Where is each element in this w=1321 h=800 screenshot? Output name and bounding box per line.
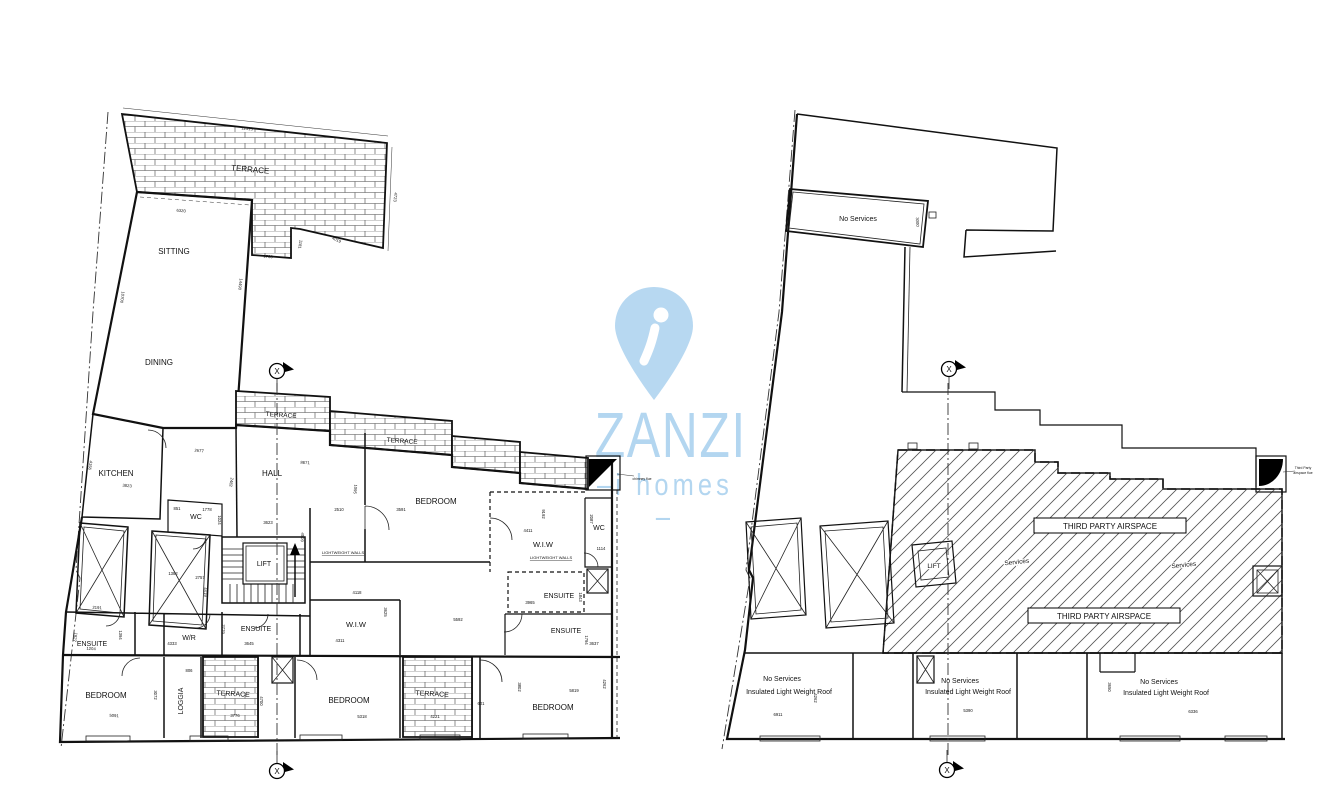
terrace-top xyxy=(122,114,387,258)
dimension-label: 10700 xyxy=(119,291,126,304)
dimension-label: 806 xyxy=(186,668,194,673)
dimension-label: 4262 xyxy=(813,693,818,703)
dimension-label: 4509 xyxy=(300,532,306,542)
dimension-label: 1394 xyxy=(118,630,123,640)
room-label: ENSUITE xyxy=(551,628,582,635)
dimension-label: 4262 xyxy=(602,679,607,689)
room-label: DINING xyxy=(145,358,173,367)
dimension-label: 1794 xyxy=(584,635,589,645)
room-label: No Services xyxy=(763,676,801,683)
section-marker-letter: X xyxy=(274,367,280,376)
dimension-label: 4118 xyxy=(352,590,362,595)
tiny-note: Third Party xyxy=(1295,466,1312,470)
dimension-label: 3625 xyxy=(383,607,388,617)
room-label: BEDROOM xyxy=(85,691,127,700)
dimension-label: 1204 xyxy=(86,646,96,652)
dimension-label: 3000 xyxy=(915,217,920,227)
dimension-label: 9192 xyxy=(541,509,546,519)
dimension-label: 4221 xyxy=(430,714,440,719)
room3-step xyxy=(1100,653,1135,672)
dimension-label: 1114 xyxy=(597,546,606,551)
tiny-note: LIGHTWEIGHT WALLS xyxy=(530,555,573,560)
tiny-note: chimney flue xyxy=(632,477,651,481)
dimension-label: 3623 xyxy=(263,520,273,525)
dimension-label: 4419 xyxy=(203,587,208,597)
room-label: BEDROOM xyxy=(532,703,574,712)
staircase xyxy=(222,537,305,603)
room-label: Insulated Light Weight Roof xyxy=(746,689,832,696)
dimension-label: 5390 xyxy=(963,708,973,713)
section-marker: X xyxy=(270,362,295,391)
wall-below-room xyxy=(902,247,905,392)
service-shaft xyxy=(76,523,128,617)
upper-outline xyxy=(797,114,1057,257)
dimension-label: 6320 xyxy=(176,208,186,214)
dimension-label: 3965 xyxy=(525,600,535,605)
drawing-sheet: ZANZI –i homes – xyxy=(0,0,1321,800)
dimension-label: 5819 xyxy=(569,688,579,693)
dimension-label: 2087 xyxy=(589,514,594,524)
dimension-label: 6911 xyxy=(773,712,783,717)
dimension-label: 1827 xyxy=(72,632,79,643)
chimney-flue-flag xyxy=(586,456,634,490)
roof-plan-right: THIRD PARTY AIRSPACE THIRD PARTY AIRSPAC… xyxy=(722,110,1313,757)
dimension-label: 1095 xyxy=(353,484,359,494)
room-label: Insulated Light Weight Roof xyxy=(1123,690,1209,697)
dimension-label: 5318 xyxy=(357,714,367,719)
room-label: HALL xyxy=(262,469,283,478)
dimension-label: 3072 xyxy=(153,690,158,700)
section-marker: X xyxy=(270,751,295,779)
hall-wall xyxy=(236,428,237,537)
roof-tick xyxy=(908,443,917,449)
dimension-label: 4333 xyxy=(167,641,177,646)
sitting-dining-room xyxy=(93,192,252,428)
room-label: LIFT xyxy=(927,563,940,570)
room-label: KITCHEN xyxy=(98,469,133,478)
dimension-label: 1382 xyxy=(168,571,178,576)
bottom-row-top-wall xyxy=(63,655,620,657)
room-label: No Services xyxy=(839,216,877,223)
tiny-note: airspace flue xyxy=(1293,471,1312,475)
dimension-label: 2757 xyxy=(195,575,205,580)
airspace-box-label: THIRD PARTY AIRSPACE xyxy=(1063,522,1157,531)
dimension-label: 4723 xyxy=(393,192,399,202)
dimension-label: 1843 xyxy=(578,592,583,602)
dimension-label: 8671 xyxy=(300,460,310,466)
room-label: No Services xyxy=(941,678,979,685)
dimension-label: 5592 xyxy=(453,617,463,622)
dimension-label: 3776 xyxy=(230,713,240,718)
dimension-label: 2191 xyxy=(92,605,102,611)
dimension-label: 1730 xyxy=(263,254,273,260)
service-shaft xyxy=(746,518,806,619)
third-party-airspace-box: THIRD PARTY AIRSPACE xyxy=(1034,518,1186,533)
wc-right-walls xyxy=(585,498,612,567)
room-label: WC xyxy=(593,525,605,532)
dimension-label: 4411 xyxy=(523,528,533,533)
dimension-label: 601 xyxy=(478,701,486,706)
site-boundary-line xyxy=(61,112,108,748)
dimension-label: 5091 xyxy=(109,713,119,719)
lightweight-walls xyxy=(490,492,585,572)
room-label: BEDROOM xyxy=(328,696,370,705)
room-label: WC xyxy=(190,514,202,521)
room-label: W/R xyxy=(182,635,196,642)
section-marker: X xyxy=(942,360,967,389)
dimension-label: 3802 xyxy=(517,682,522,692)
dimension-label: 2510 xyxy=(334,507,344,512)
dimension-label: 4700 xyxy=(259,696,264,706)
room-label: No Services xyxy=(1140,679,1178,686)
dimension-label: 12515 xyxy=(241,126,254,132)
room-label: W.I.W xyxy=(533,540,554,549)
room-label: Insulated Light Weight Roof xyxy=(925,689,1011,696)
service-shaft xyxy=(587,569,608,593)
dimension-label: 3591 xyxy=(396,507,406,512)
dimension-label: 851 xyxy=(174,506,182,511)
section-marker-letter: X xyxy=(946,365,952,374)
dimension-label: 1778 xyxy=(202,507,212,512)
service-shaft xyxy=(917,656,934,683)
dimension-label: 2779 xyxy=(221,624,226,634)
dimension-label: 1181 xyxy=(297,239,304,249)
room-label: ENSUITE xyxy=(544,593,575,600)
floor-plan-left: TERRACESITTINGDININGKITCHENWCHALLLIFTTER… xyxy=(60,108,652,757)
dimension-label: 3650 xyxy=(1107,682,1112,692)
room-label: LOGGIA xyxy=(178,687,185,714)
section-marker-letter: X xyxy=(274,767,280,776)
dimension-label: 3823 xyxy=(122,483,132,489)
third-party-flue-flag xyxy=(1256,456,1295,492)
dimension-label: 1024 xyxy=(217,515,222,525)
floor-plans-canvas: TERRACESITTINGDININGKITCHENWCHALLLIFTTER… xyxy=(0,0,1321,800)
room-label: BEDROOM xyxy=(415,497,457,506)
wall-below-room-inner xyxy=(907,247,910,392)
tiny-note: LIGHTWEIGHT WALLS xyxy=(322,550,365,555)
dimension-label: 14490 xyxy=(237,278,243,291)
kitchen-room xyxy=(82,414,163,519)
right-plan-notes: Third Partyairspace flue xyxy=(1293,466,1312,475)
service-shaft xyxy=(272,657,293,683)
section-marker-letter: X xyxy=(944,766,950,775)
section-marker: X xyxy=(940,750,965,778)
service-shaft xyxy=(820,521,894,628)
room-label: W.I.W xyxy=(346,620,367,629)
third-party-airspace-box: THIRD PARTY AIRSPACE xyxy=(1028,608,1180,623)
roof-tick xyxy=(969,443,978,449)
room-label: SITTING xyxy=(158,247,190,256)
dimension-label: 3637 xyxy=(589,641,599,646)
dimension-label: 6336 xyxy=(1188,709,1198,714)
dimension-label: 4311 xyxy=(335,638,345,643)
room-label: ENSUITE xyxy=(241,626,272,633)
room-label: LIFT xyxy=(257,561,272,568)
airspace-box-label: THIRD PARTY AIRSPACE xyxy=(1057,612,1151,621)
dimension-label: 2482 xyxy=(228,477,235,488)
dimension-label: 2677 xyxy=(194,448,204,454)
dimension-label: 3645 xyxy=(244,641,254,646)
ensuite-lightweight-box xyxy=(508,572,584,612)
